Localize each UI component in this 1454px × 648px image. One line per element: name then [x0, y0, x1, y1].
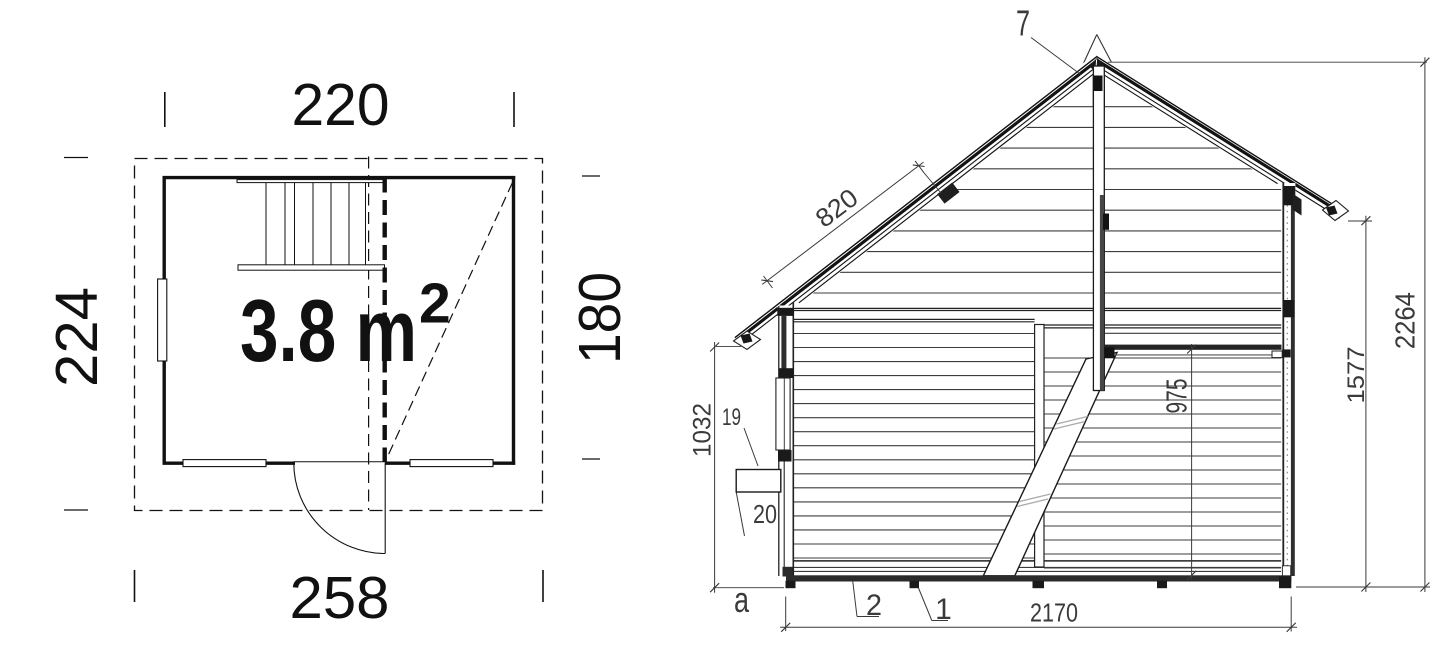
svg-text:2264: 2264: [1390, 292, 1421, 349]
svg-text:1577: 1577: [1343, 347, 1370, 404]
svg-text:180: 180: [567, 272, 633, 364]
svg-text:258: 258: [290, 565, 390, 631]
svg-text:224: 224: [44, 287, 110, 387]
svg-text:3.8 m: 3.8 m: [240, 281, 417, 380]
svg-text:1: 1: [935, 593, 952, 626]
svg-text:1032: 1032: [689, 403, 717, 457]
svg-text:a: a: [734, 579, 750, 620]
svg-text:7: 7: [1016, 3, 1030, 44]
svg-text:220: 220: [292, 72, 390, 138]
svg-text:19: 19: [722, 404, 741, 431]
svg-text:975: 975: [1162, 379, 1194, 414]
svg-text:2: 2: [419, 272, 451, 336]
svg-text:20: 20: [753, 499, 777, 529]
svg-text:2: 2: [866, 589, 882, 622]
svg-text:2170: 2170: [1030, 598, 1078, 628]
